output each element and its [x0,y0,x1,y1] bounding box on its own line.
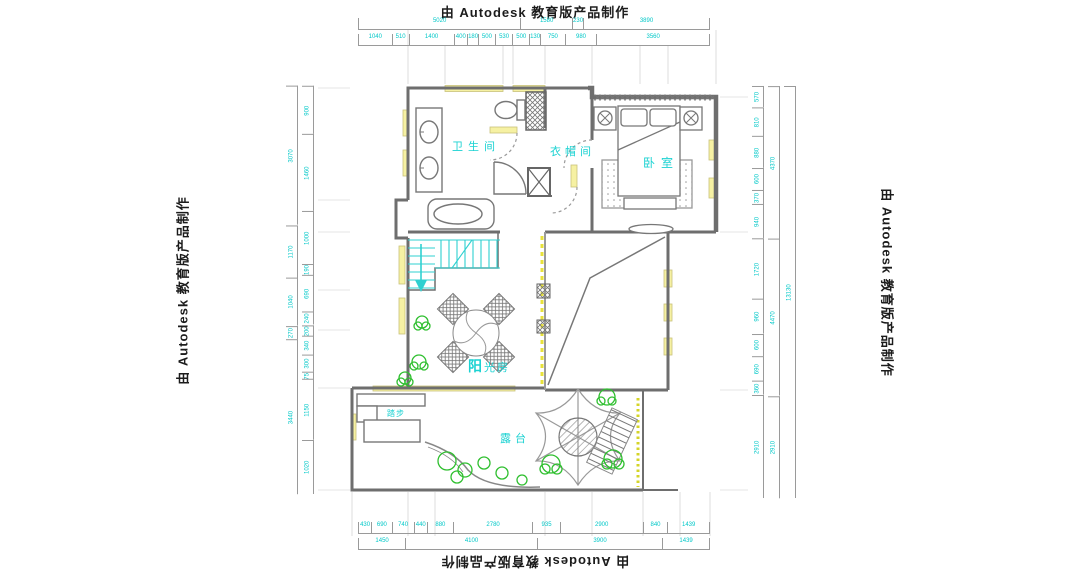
dim-segment: 880 [428,522,454,534]
dim-segment: 1460 [302,134,314,211]
dim-chain-bottom-outer: 1450410039001439 [358,538,710,550]
dim-chain-left-outer: 3070117010402703440 [286,86,298,494]
dim-segment: 600 [752,334,764,356]
dim-segment: 940 [752,204,764,238]
dim-segment: 935 [533,522,560,534]
dim-segment: 130 [530,34,541,46]
watermark-right: 由 Autodesk 教育版产品制作 [879,143,898,423]
dim-segment: 3070 [286,86,298,225]
dim-segment: 3440 [286,339,298,494]
dim-segment: 5020 [358,18,521,30]
dim-segment: 500 [479,34,496,46]
dim-chain-top-outer: 502015802303890 [358,18,710,30]
dim-segment: 1439 [663,538,710,550]
dim-segment: 690 [752,356,764,381]
dim-segment: 880 [752,136,764,168]
dim-chain-right-outer: 13130 [784,86,796,498]
dim-segment: 370 [752,190,764,204]
dim-segment: 240 [302,311,314,324]
dim-segment: 2910 [768,396,780,498]
room-label-sunroom-rest: 光房 [484,362,510,374]
column-shaft [528,168,550,196]
dim-segment: 1170 [286,225,298,278]
dim-segment: 1000 [302,211,314,264]
dim-segment: 530 [496,34,514,46]
room-label-terrace: 露台 [500,430,530,446]
dim-segment: 1450 [358,538,406,550]
dim-chain-top-inner: 104051014004001805005305001307509803560 [358,34,710,46]
dim-segment: 1580 [521,18,573,30]
dim-segment: 190 [302,264,314,275]
floorplan-canvas [0,0,1074,576]
dim-chain-right-mid: 437044702910 [768,86,780,498]
dim-segment: 2910 [752,395,764,498]
dim-segment: 340 [302,336,314,355]
dim-segment: 1720 [752,238,764,299]
dim-segment: 810 [752,107,764,136]
dim-segment: 300 [302,355,314,372]
room-label-cloakroom: 衣帽间 [550,143,595,159]
glass-wall [537,232,550,390]
dim-segment: 180 [468,34,479,46]
dim-segment: 1040 [358,34,393,46]
dim-segment: 440 [415,522,428,534]
bedroom-top-wall-hatch [594,95,714,101]
watermark-left: 由 Autodesk 教育版产品制作 [173,151,192,431]
dim-segment: 4470 [768,239,780,396]
stairs [408,240,500,292]
room-label-sunroom: 阳光房 [468,356,510,376]
dim-chain-right-inner: 57081088060037094017209606006903602910 [752,86,764,498]
dim-segment: 400 [455,34,469,46]
room-label-bathroom: 卫生间 [452,138,500,154]
flower-bed [425,442,540,487]
dim-segment: 840 [644,522,669,534]
dim-segment: 2900 [561,522,644,534]
dim-segment: 3890 [584,18,710,30]
dim-segment: 3900 [538,538,663,550]
dim-segment: 690 [302,275,314,312]
cad-floorplan-sheet: 由 Autodesk 教育版产品制作 由 Autodesk 教育版产品制作 由 … [0,0,1074,576]
bathroom-fixtures [416,100,526,229]
dim-segment: 200 [302,325,314,336]
dim-segment: 600 [752,168,764,190]
dim-segment: 740 [393,522,415,534]
room-label-bedroom: 卧室 [643,154,679,171]
dim-segment: 960 [752,299,764,334]
dim-segment: 1439 [668,522,710,534]
dim-segment: 750 [541,34,566,46]
dim-segment: 270 [286,326,298,339]
watermark-bottom: 由 Autodesk 教育版产品制作 [395,553,675,572]
dim-segment: 1400 [410,34,455,46]
dim-segment: 1040 [286,278,298,326]
wardrobe [526,92,546,130]
room-label-sunroom-bold: 阳 [468,358,484,374]
room-label-steps: 踏步 [387,408,405,419]
roof-slope-line [548,237,665,385]
dim-segment: 13130 [784,86,796,498]
dim-segment: 570 [752,86,764,107]
dim-chain-left-inner: 900146010001906902402003403007511501020 [302,86,314,494]
dim-segment: 900 [302,86,314,134]
dim-segment: 690 [372,522,392,534]
dim-segment: 980 [566,34,598,46]
dim-segment: 360 [752,381,764,395]
dim-segment: 500 [513,34,530,46]
dim-segment: 3560 [597,34,710,46]
dim-segment: 4100 [406,538,538,550]
dim-segment: 2780 [454,522,534,534]
dim-chain-bottom-inner: 430690740440880278093529008401439 [358,522,710,534]
dim-segment: 1150 [302,379,314,440]
dim-segment: 510 [393,34,410,46]
dim-segment: 230 [573,18,584,30]
dim-segment: 4370 [768,86,780,239]
dim-segment: 1020 [302,440,314,494]
dim-segment: 430 [358,522,372,534]
